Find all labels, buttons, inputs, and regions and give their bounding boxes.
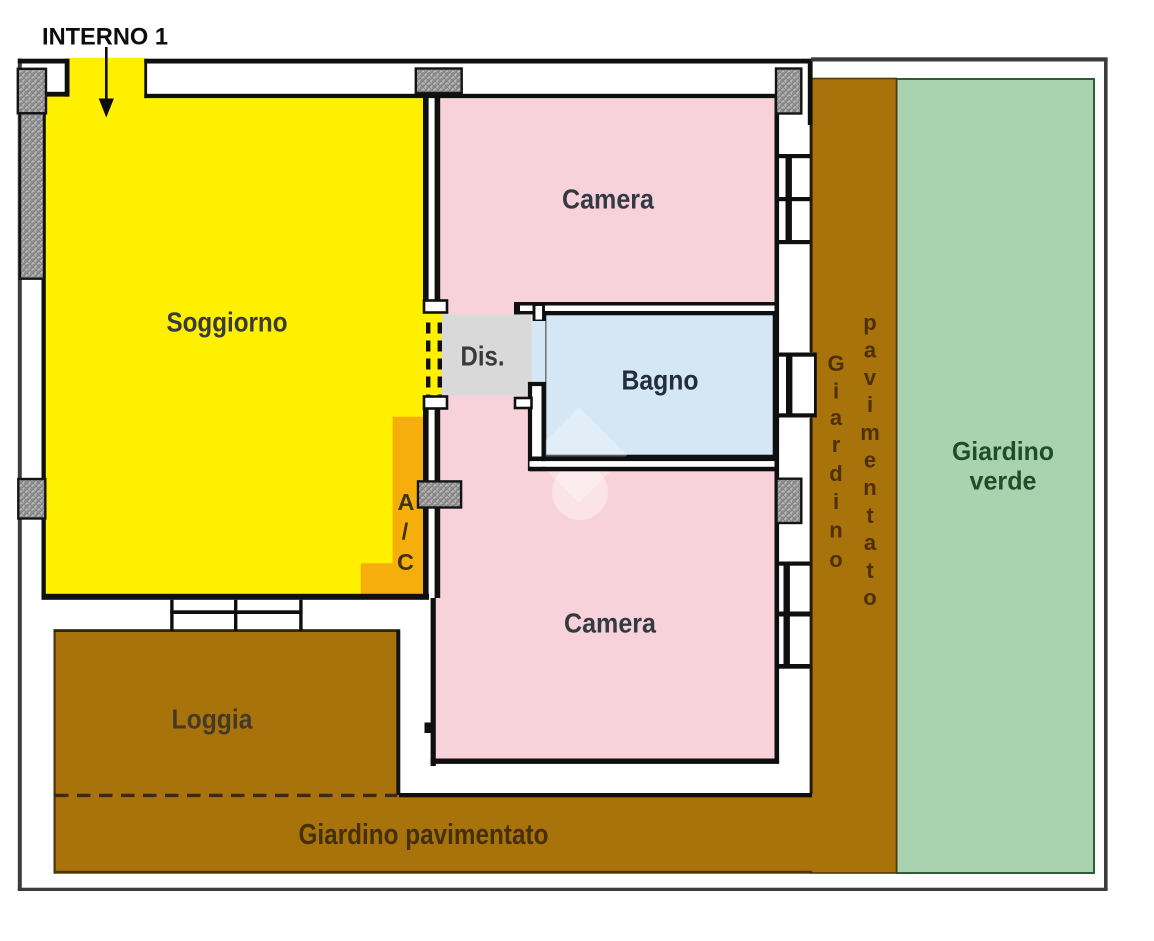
svg-text:a: a <box>864 530 877 555</box>
svg-text:r: r <box>832 432 841 457</box>
svg-text:o: o <box>829 547 842 572</box>
svg-text:m: m <box>860 420 880 445</box>
svg-text:Loggia: Loggia <box>172 704 253 735</box>
svg-text:o: o <box>863 585 876 610</box>
svg-text:i: i <box>833 379 839 404</box>
svg-text:INTERNO 1: INTERNO 1 <box>42 24 168 51</box>
svg-text:t: t <box>866 503 874 528</box>
svg-text:a: a <box>830 405 843 430</box>
svg-text:n: n <box>829 518 842 543</box>
svg-text:d: d <box>829 461 842 486</box>
svg-text:Soggiorno: Soggiorno <box>167 307 288 338</box>
svg-text:Camera: Camera <box>562 184 655 215</box>
svg-text:Dis.: Dis. <box>461 341 505 372</box>
svg-text:G: G <box>827 351 844 376</box>
svg-text:i: i <box>833 489 839 514</box>
svg-text:n: n <box>863 475 876 500</box>
svg-text:v: v <box>864 365 877 390</box>
svg-text:t: t <box>866 558 874 583</box>
svg-text:Bagno: Bagno <box>622 365 699 396</box>
svg-text:/: / <box>402 519 409 545</box>
svg-text:a: a <box>864 338 877 363</box>
svg-text:Camera: Camera <box>564 608 657 639</box>
svg-text:i: i <box>867 392 873 417</box>
svg-text:C: C <box>397 549 414 575</box>
svg-text:Giardino pavimentato: Giardino pavimentato <box>299 819 549 851</box>
svg-text:p: p <box>863 310 876 335</box>
svg-text:Giardino: Giardino <box>952 436 1054 466</box>
svg-text:A: A <box>398 489 415 515</box>
svg-text:verde: verde <box>970 466 1037 496</box>
svg-text:e: e <box>864 448 876 473</box>
